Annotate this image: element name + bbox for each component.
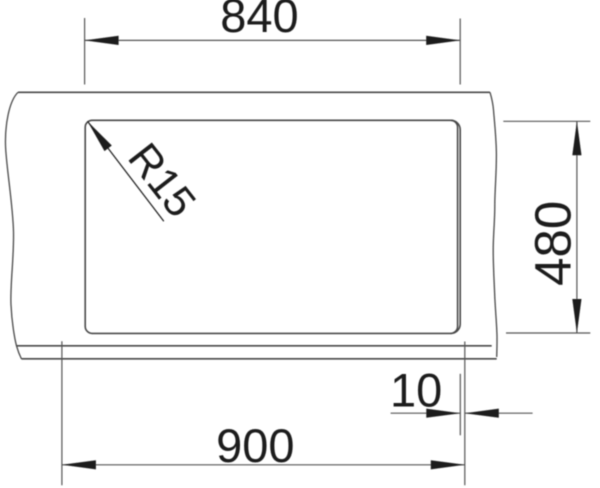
svg-text:R15: R15 bbox=[118, 135, 204, 227]
svg-text:840: 840 bbox=[220, 0, 298, 42]
svg-text:900: 900 bbox=[216, 419, 294, 472]
svg-text:480: 480 bbox=[524, 201, 581, 286]
svg-text:10: 10 bbox=[390, 364, 442, 417]
